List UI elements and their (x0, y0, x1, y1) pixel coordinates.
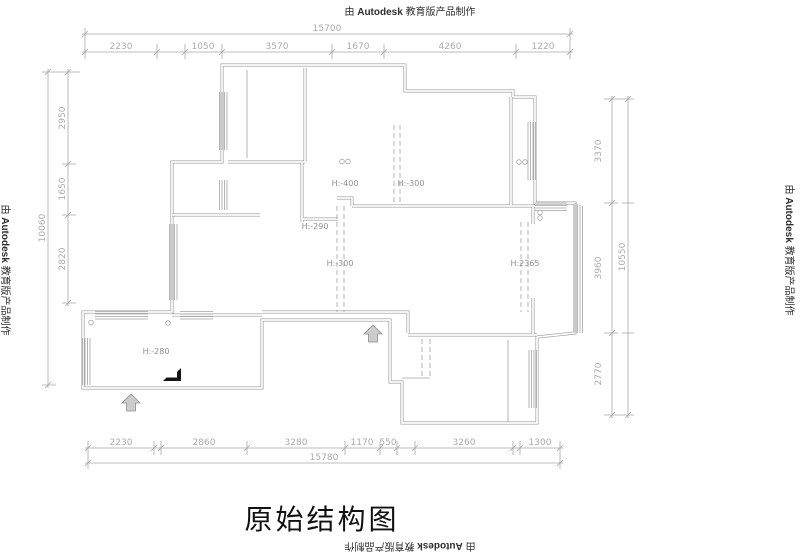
furniture-lines (247, 70, 508, 422)
dimension-chain-bottom: 2230 2860 3280 1170 550 3260 1300 15780 (85, 438, 563, 469)
dim-bottom-seg: 550 (379, 438, 396, 448)
floor-plan-svg: H:-400 H:-300 H:-290 H:-300 H:2365 H:-28… (0, 0, 800, 557)
height-label: H:-290 (302, 222, 329, 231)
dim-right-seg: 2770 (594, 362, 604, 385)
dim-left-seg: 2950 (58, 106, 68, 129)
height-label: H:-400 (332, 179, 359, 188)
dim-bottom-seg: 1170 (351, 438, 374, 448)
dimension-chain-right: 3370 3960 2770 10550 (594, 96, 634, 418)
dim-right-seg: 3370 (594, 139, 604, 162)
level-marker-symbol (163, 368, 181, 381)
door-hinge-circles (89, 159, 543, 325)
dim-right-seg: 3960 (594, 256, 604, 279)
dim-top-seg: 4260 (439, 42, 462, 52)
dim-bottom-seg: 2860 (193, 438, 216, 448)
dim-top-seg: 1050 (192, 42, 215, 52)
dim-top-seg: 2230 (110, 42, 133, 52)
dimension-chain-top: 15700 2230 1050 3570 1670 4260 1220 (82, 24, 573, 59)
entry-arrow-bottom (122, 394, 140, 411)
height-label: H:-300 (327, 259, 354, 268)
outer-wall-outline (83, 65, 575, 423)
drawing-sheet: 由 Autodesk 教育版产品制作 由 Autodesk 教育版产品制作 由 … (0, 0, 800, 557)
height-label: H:-300 (398, 179, 425, 188)
window-bands (83, 92, 583, 408)
dim-top-seg: 3570 (266, 42, 289, 52)
dim-top-seg: 1220 (532, 42, 555, 52)
dim-left-overall: 10060 (38, 213, 48, 242)
entry-arrows (122, 325, 382, 411)
dim-left-seg: 1650 (58, 177, 68, 200)
dim-top-seg: 1670 (347, 42, 370, 52)
dim-left-seg: 2820 (58, 247, 68, 270)
dimension-chain-left: 10060 2950 1650 2820 (38, 69, 80, 388)
dim-top-overall: 15700 (313, 24, 342, 34)
dim-right-overall: 10550 (618, 242, 628, 271)
dim-bottom-seg: 2230 (110, 438, 133, 448)
entry-arrow-middle (364, 325, 382, 342)
dim-bottom-seg: 1300 (529, 438, 552, 448)
height-label: H:-280 (143, 347, 170, 356)
beam-dashed-lines (337, 125, 528, 377)
drawing-title: 原始结构图 (227, 498, 417, 538)
height-label: H:2365 (510, 259, 539, 268)
dim-bottom-seg: 3280 (285, 438, 308, 448)
dim-bottom-seg: 3260 (453, 438, 476, 448)
dim-bottom-overall: 15780 (310, 453, 339, 463)
